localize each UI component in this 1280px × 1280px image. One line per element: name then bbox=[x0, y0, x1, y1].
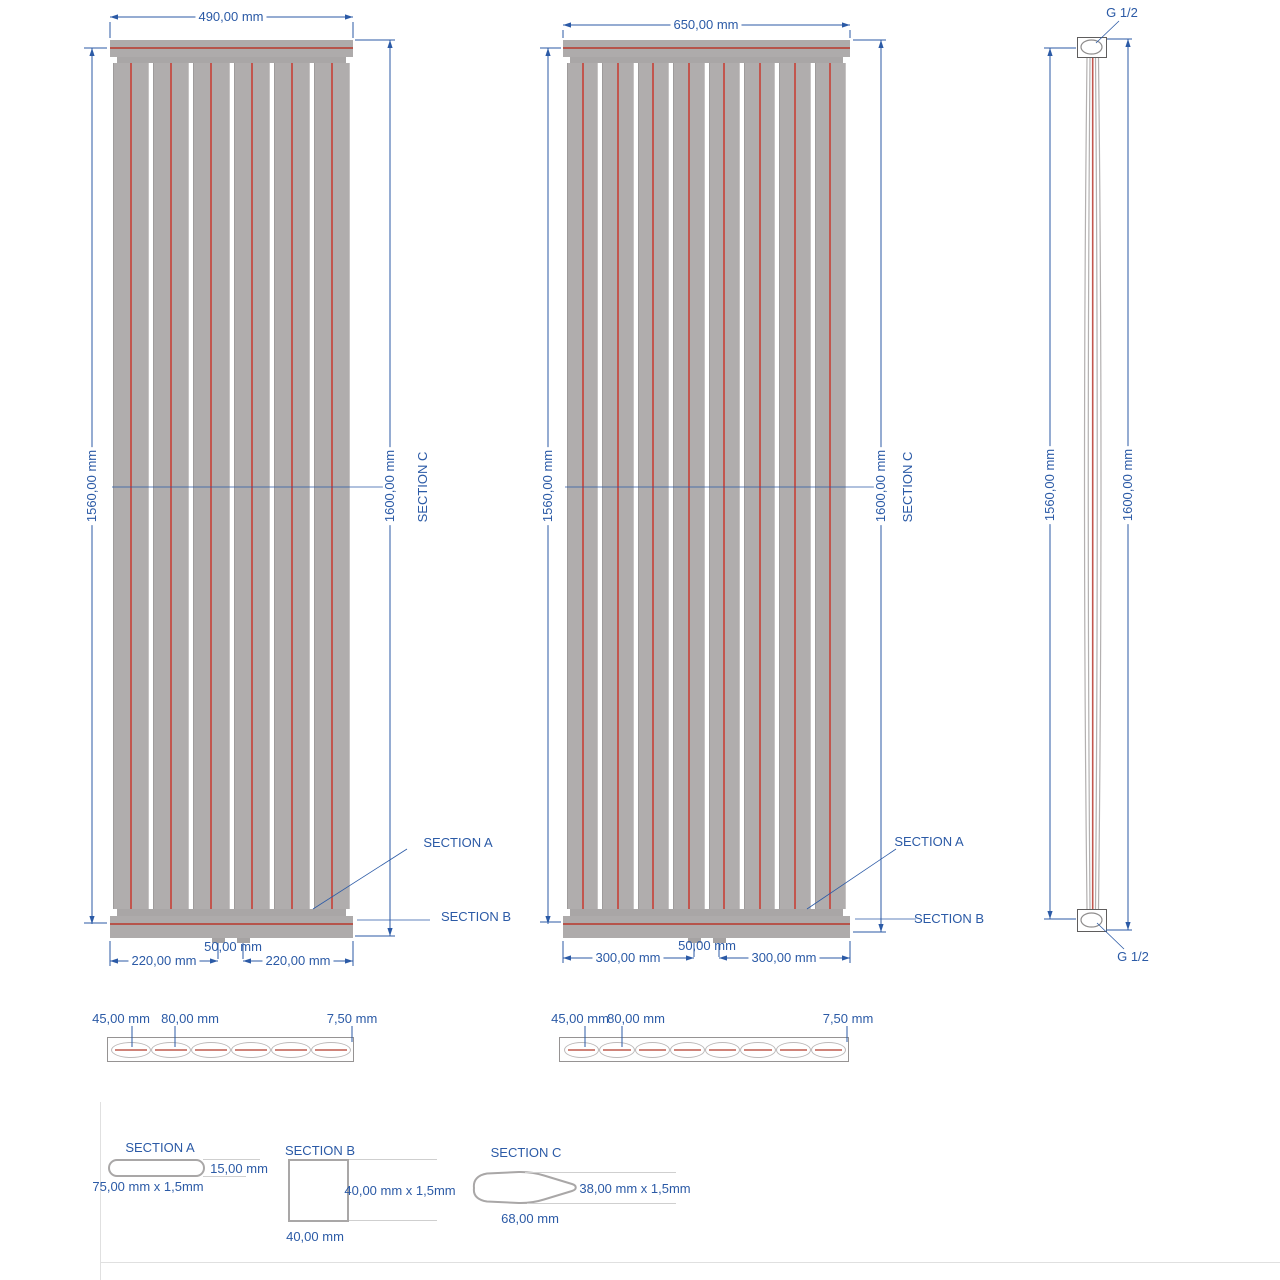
panel-water-channel-line bbox=[210, 63, 212, 909]
side-view-top-connection-box bbox=[1077, 37, 1107, 58]
panel-water-channel-line bbox=[723, 63, 725, 909]
cross-section-channel-line bbox=[674, 1049, 701, 1051]
dim-label-conn-spacing-large: 50,00 mm bbox=[678, 939, 736, 953]
profile-outer-right bbox=[1099, 58, 1102, 909]
radiator-panel bbox=[153, 63, 189, 909]
cross-section-channel-line bbox=[744, 1049, 771, 1051]
section-a-height-label: 15,00 mm bbox=[210, 1162, 268, 1176]
plan-panel-cross-section bbox=[635, 1042, 670, 1058]
plan-small-panel-width-label: 80,00 mm bbox=[161, 1012, 219, 1026]
dim-label-height-overall-large: 1600,00 mm bbox=[874, 447, 888, 525]
radiator-panel bbox=[744, 63, 775, 909]
bottom-neck-small bbox=[117, 909, 346, 916]
section-b-callout-small: SECTION B bbox=[441, 910, 511, 924]
dim-label-height-overall-side: 1600,00 mm bbox=[1121, 446, 1135, 524]
dim-label-conn-right-small: 220,00 mm bbox=[262, 954, 333, 968]
plan-panel-cross-section bbox=[705, 1042, 740, 1058]
section-a-profile-shape bbox=[108, 1159, 205, 1177]
plan-large-panel-width-label: 80,00 mm bbox=[607, 1012, 665, 1026]
cross-section-channel-line bbox=[115, 1049, 147, 1051]
radiator-panel bbox=[815, 63, 846, 909]
plan-panel-cross-section bbox=[271, 1042, 311, 1058]
dim-label-width-large: 650,00 mm bbox=[670, 18, 741, 32]
dim-label-conn-left-small: 220,00 mm bbox=[128, 954, 199, 968]
section-a-size-label: 75,00 mm x 1,5mm bbox=[92, 1180, 203, 1194]
cross-section-channel-line bbox=[195, 1049, 227, 1051]
radiator-panel bbox=[274, 63, 310, 909]
connection-label-top: G 1/2 bbox=[1106, 6, 1138, 20]
radiator-panel bbox=[567, 63, 598, 909]
bottom-collector-large bbox=[563, 916, 850, 938]
panel-water-channel-line bbox=[582, 63, 584, 909]
cross-section-channel-line bbox=[315, 1049, 347, 1051]
plan-panel-cross-section bbox=[231, 1042, 271, 1058]
plan-view-small-elements bbox=[111, 1042, 351, 1056]
panel-water-channel-line bbox=[331, 63, 333, 909]
plan-panel-cross-section bbox=[191, 1042, 231, 1058]
section-c-profile-shape bbox=[474, 1172, 576, 1203]
panel-water-channel-line bbox=[130, 63, 132, 909]
section-c-width-label: 68,00 mm bbox=[501, 1212, 559, 1226]
top-collector-large bbox=[563, 40, 850, 57]
collector-channel-line bbox=[563, 923, 850, 925]
cross-section-channel-line bbox=[603, 1049, 630, 1051]
dim-label-height-overall-small: 1600,00 mm bbox=[383, 447, 397, 525]
dim-label-conn-right-large: 300,00 mm bbox=[748, 951, 819, 965]
panel-water-channel-line bbox=[829, 63, 831, 909]
section-b-callout-large: SECTION B bbox=[914, 912, 984, 926]
bottom-neck-large bbox=[570, 909, 843, 916]
dim-label-conn-spacing-small: 50,00 mm bbox=[204, 940, 262, 954]
radiator-panel bbox=[193, 63, 229, 909]
panel-water-channel-line bbox=[251, 63, 253, 909]
radiator-panel bbox=[673, 63, 704, 909]
section-c-callout-small: SECTION C bbox=[416, 449, 430, 526]
section-b-title: SECTION B bbox=[285, 1144, 355, 1158]
plan-small-gap-label: 7,50 mm bbox=[327, 1012, 378, 1026]
cross-section-channel-line bbox=[639, 1049, 666, 1051]
dim-label-width-small: 490,00 mm bbox=[195, 10, 266, 24]
cross-section-channel-line bbox=[275, 1049, 307, 1051]
side-view-profile bbox=[1081, 40, 1102, 927]
plan-small-depth-label: 45,00 mm bbox=[92, 1012, 150, 1026]
plan-panel-cross-section bbox=[311, 1042, 351, 1058]
plan-panel-cross-section bbox=[740, 1042, 775, 1058]
plan-panel-cross-section bbox=[151, 1042, 191, 1058]
plan-panel-cross-section bbox=[111, 1042, 151, 1058]
section-b-profile-shape bbox=[288, 1159, 349, 1222]
technical-drawing-canvas: 490,00 mm 1560,00 mm 1600,00 mm SECTION … bbox=[0, 0, 1280, 1280]
profile-inner-left bbox=[1088, 58, 1090, 909]
collector-channel-line bbox=[110, 923, 353, 925]
panel-water-channel-line bbox=[170, 63, 172, 909]
section-b-size-label: 40,00 mm x 1,5mm bbox=[344, 1184, 455, 1198]
profile-outer-left bbox=[1085, 58, 1088, 909]
panel-water-channel-line bbox=[794, 63, 796, 909]
cross-section-channel-line bbox=[568, 1049, 595, 1051]
bottom-collector-small bbox=[110, 916, 353, 938]
section-c-callout-large: SECTION C bbox=[901, 449, 915, 526]
plan-panel-cross-section bbox=[564, 1042, 599, 1058]
radiator-panel bbox=[779, 63, 810, 909]
plan-large-gap-label: 7,50 mm bbox=[823, 1012, 874, 1026]
side-view-bottom-connection-box bbox=[1077, 909, 1107, 932]
dim-label-height-inner-large: 1560,00 mm bbox=[541, 447, 555, 525]
panel-water-channel-line bbox=[617, 63, 619, 909]
panel-array-small bbox=[113, 63, 350, 909]
plan-panel-cross-section bbox=[811, 1042, 846, 1058]
cross-section-channel-line bbox=[235, 1049, 267, 1051]
section-a-title: SECTION A bbox=[125, 1141, 194, 1155]
radiator-panel bbox=[709, 63, 740, 909]
dim-label-height-inner-side: 1560,00 mm bbox=[1043, 446, 1057, 524]
dim-label-conn-left-large: 300,00 mm bbox=[592, 951, 663, 965]
radiator-panel bbox=[602, 63, 633, 909]
radiator-panel bbox=[638, 63, 669, 909]
plan-panel-cross-section bbox=[670, 1042, 705, 1058]
top-collector-small bbox=[110, 40, 353, 57]
section-b-width-label: 40,00 mm bbox=[286, 1230, 344, 1244]
panel-water-channel-line bbox=[652, 63, 654, 909]
collector-channel-line bbox=[563, 47, 850, 49]
cross-section-channel-line bbox=[155, 1049, 187, 1051]
radiator-panel bbox=[113, 63, 149, 909]
panel-water-channel-line bbox=[291, 63, 293, 909]
cross-section-channel-line bbox=[780, 1049, 807, 1051]
plan-view-large-elements bbox=[564, 1042, 846, 1056]
section-a-callout-large: SECTION A bbox=[894, 835, 963, 849]
profile-inner-right bbox=[1096, 58, 1098, 909]
connection-label-bottom: G 1/2 bbox=[1117, 950, 1149, 964]
section-a-callout-small: SECTION A bbox=[423, 836, 492, 850]
cross-section-channel-line bbox=[709, 1049, 736, 1051]
section-c-size-label: 38,00 mm x 1,5mm bbox=[579, 1182, 690, 1196]
radiator-panel bbox=[314, 63, 350, 909]
plan-large-depth-label: 45,00 mm bbox=[551, 1012, 609, 1026]
radiator-panel bbox=[234, 63, 270, 909]
panel-array-large bbox=[567, 63, 846, 909]
dim-label-height-inner-small: 1560,00 mm bbox=[85, 447, 99, 525]
collector-channel-line bbox=[110, 47, 353, 49]
plan-panel-cross-section bbox=[599, 1042, 634, 1058]
section-c-title: SECTION C bbox=[491, 1146, 562, 1160]
panel-water-channel-line bbox=[688, 63, 690, 909]
cross-section-channel-line bbox=[815, 1049, 842, 1051]
panel-water-channel-line bbox=[759, 63, 761, 909]
plan-panel-cross-section bbox=[776, 1042, 811, 1058]
